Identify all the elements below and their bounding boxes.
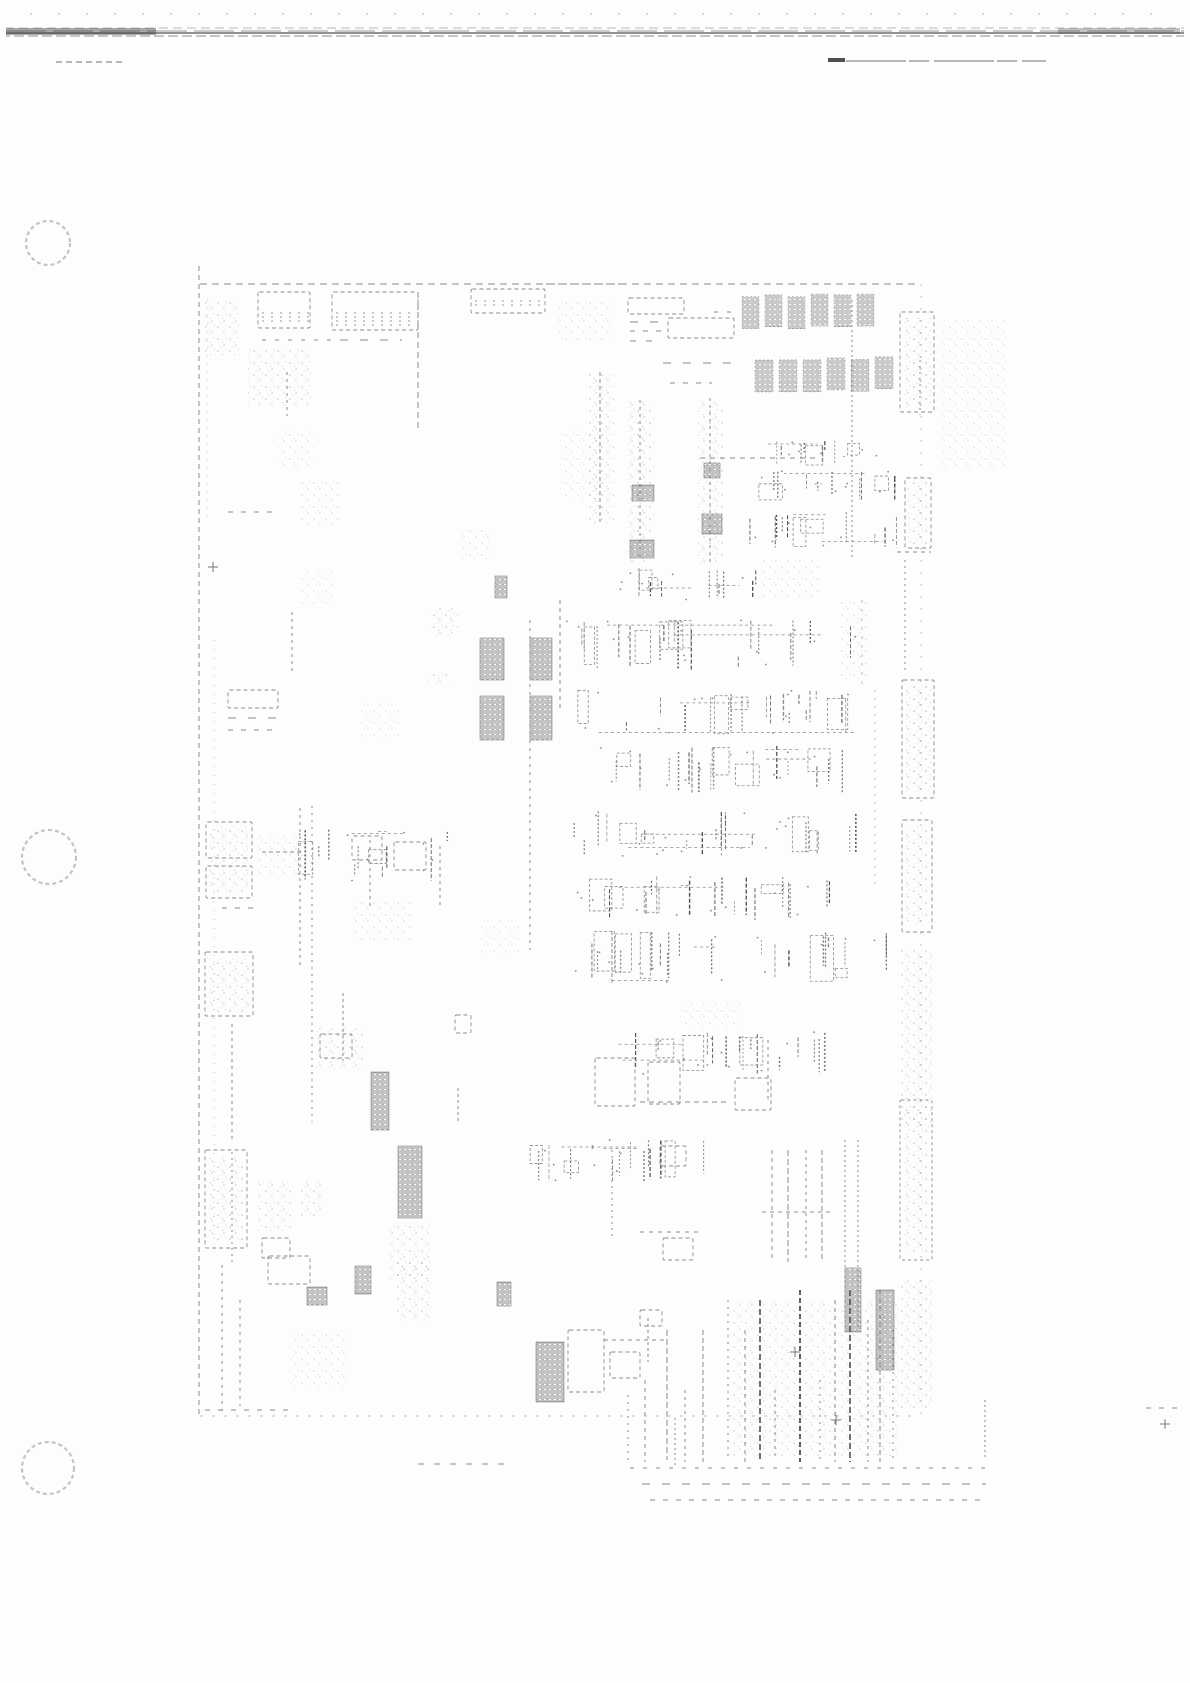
punch-holes — [22, 221, 76, 1494]
cluster-box — [564, 1161, 578, 1172]
cluster-dot — [788, 454, 790, 456]
ic-cell — [875, 357, 893, 389]
component-cluster — [574, 811, 856, 857]
cluster-dot — [629, 751, 631, 753]
cluster-dot — [740, 847, 742, 849]
speck-cluster — [248, 348, 312, 406]
cluster-dot — [681, 850, 683, 852]
dark-component-block — [495, 576, 507, 598]
cluster-dot — [652, 967, 654, 969]
component-box — [228, 690, 278, 708]
cluster-dot — [699, 768, 701, 770]
dark-component-block — [530, 638, 552, 680]
cluster-dot — [773, 774, 775, 776]
speck-cluster — [906, 686, 931, 792]
dark-component-block — [632, 485, 654, 501]
speck-cluster — [258, 1180, 294, 1232]
component-box — [648, 1062, 680, 1104]
cluster-dot — [668, 732, 670, 734]
dark-component-block — [630, 540, 654, 558]
dark-component-block — [307, 1287, 327, 1305]
component-box — [595, 1058, 635, 1106]
ic-block-row — [755, 357, 893, 392]
cluster-dot — [636, 909, 638, 911]
cluster-dot — [876, 455, 878, 457]
schematic-drawing — [199, 266, 1184, 1500]
speck-cluster — [300, 1180, 322, 1216]
cluster-dot — [659, 1040, 661, 1042]
dark-component-block — [480, 696, 504, 740]
cluster-dot — [798, 451, 800, 453]
cluster-dot — [641, 973, 643, 975]
cluster-dot — [616, 1170, 618, 1172]
cluster-dot — [676, 914, 678, 916]
cluster-dot — [794, 629, 796, 631]
cluster-dot — [615, 971, 617, 973]
dark-component-block — [536, 1342, 564, 1402]
plus-mark — [208, 562, 218, 572]
cluster-box — [793, 517, 806, 546]
cluster-dot — [684, 779, 686, 781]
cluster-box — [669, 621, 691, 648]
cluster-dot — [788, 817, 790, 819]
speck-cluster — [898, 950, 932, 1125]
cluster-dot — [740, 620, 742, 622]
speck-cluster — [203, 300, 241, 355]
component-box — [394, 842, 426, 870]
speck-cluster — [210, 826, 248, 894]
component-box — [640, 1310, 662, 1326]
cluster-dot — [672, 573, 674, 575]
cluster-dot — [683, 1058, 685, 1060]
cluster-dot — [845, 486, 847, 488]
cluster-box — [730, 697, 748, 709]
cluster-dot — [690, 876, 692, 878]
speck-cluster — [698, 400, 724, 565]
speck-cluster — [480, 920, 520, 956]
cluster-dot — [694, 698, 696, 700]
cluster-dot — [613, 638, 615, 640]
cluster-dot — [845, 938, 847, 940]
speck-cluster — [556, 300, 612, 340]
cluster-dot — [761, 477, 763, 479]
component-cluster — [578, 690, 854, 734]
cluster-box — [605, 886, 623, 908]
cluster-dot — [544, 1150, 546, 1152]
cluster-dot — [784, 489, 786, 491]
component-box — [352, 836, 382, 860]
speck-cluster — [428, 672, 450, 686]
speck-cluster — [560, 430, 600, 500]
cluster-dot — [787, 694, 789, 696]
speck-cluster — [942, 320, 1008, 470]
cluster-dot — [820, 452, 822, 454]
component-cluster — [577, 876, 830, 920]
cluster-dot — [629, 572, 631, 574]
cluster-dot — [597, 692, 599, 694]
cluster-dot — [755, 536, 757, 538]
speck-cluster — [730, 1300, 898, 1458]
ic-cell — [857, 294, 874, 326]
cluster-dot — [658, 889, 660, 891]
cluster-dot — [685, 599, 687, 601]
dark-component-block — [355, 1266, 371, 1294]
component-box — [262, 1238, 290, 1258]
cluster-dot — [639, 843, 641, 845]
speck-cluster — [680, 1000, 740, 1028]
speck-cluster — [430, 608, 458, 636]
cluster-dot — [553, 1164, 555, 1166]
cluster-box — [805, 446, 822, 465]
cluster-dot — [640, 767, 642, 769]
cluster-box — [617, 753, 631, 766]
component-cluster — [600, 746, 842, 793]
dark-component-block — [704, 463, 720, 478]
cluster-dot — [788, 522, 790, 524]
cluster-box — [590, 879, 612, 911]
cluster-dot — [756, 651, 758, 653]
cluster-box — [584, 627, 594, 664]
dark-component-block — [497, 1282, 511, 1306]
cluster-dot — [707, 1064, 709, 1066]
cluster-dot — [721, 902, 723, 904]
cluster-dot — [785, 715, 787, 717]
cluster-dot — [765, 847, 767, 849]
cluster-dot — [797, 914, 799, 916]
cluster-box — [735, 764, 759, 786]
cluster-dot — [761, 1070, 763, 1072]
speck-cluster — [209, 958, 249, 1012]
cluster-dot — [622, 855, 624, 857]
ic-block-row — [742, 294, 874, 329]
ic-cell — [803, 360, 821, 392]
cluster-dot — [822, 545, 824, 547]
cluster-dot — [595, 815, 597, 817]
cluster-box — [620, 823, 636, 843]
tick-marks — [337, 312, 409, 326]
cluster-box — [808, 749, 830, 772]
cluster-dot — [757, 937, 759, 939]
cluster-dot — [666, 981, 668, 983]
component-box — [610, 1352, 640, 1378]
component-box — [332, 292, 418, 330]
speck-cluster — [904, 318, 931, 406]
schematic-canvas — [0, 0, 1190, 1683]
dark-component-block — [480, 638, 504, 680]
cluster-dot — [609, 1139, 611, 1141]
ic-cell — [779, 360, 797, 392]
cluster-dot — [710, 910, 712, 912]
component-cluster — [750, 512, 896, 547]
ic-cell — [788, 297, 805, 329]
cluster-dot — [594, 1164, 596, 1166]
cluster-dot — [347, 834, 349, 836]
plus-mark — [1160, 1419, 1170, 1429]
cluster-dot — [611, 781, 613, 783]
cluster-box — [715, 696, 729, 734]
speck-cluster — [904, 1106, 929, 1254]
cluster-box — [640, 933, 650, 979]
component-cluster — [759, 470, 895, 500]
cluster-dot — [779, 821, 781, 823]
cluster-dot — [581, 897, 583, 899]
cluster-box — [656, 1039, 674, 1058]
cluster-dot — [807, 886, 809, 888]
cluster-dot — [701, 698, 703, 700]
punch-hole — [22, 1442, 74, 1494]
cluster-box — [875, 476, 889, 490]
cluster-dot — [786, 1043, 788, 1045]
scanner-streak-dark-left — [6, 28, 156, 35]
cluster-dot — [658, 728, 660, 730]
cluster-dot — [779, 777, 781, 779]
ic-cell — [742, 296, 759, 328]
cluster-dot — [642, 1073, 644, 1075]
ic-cell — [755, 360, 773, 392]
cluster-box — [369, 850, 387, 864]
cluster-dot — [813, 1031, 815, 1033]
component-cluster — [620, 568, 756, 600]
cluster-dot — [641, 583, 643, 585]
cluster-dot — [791, 442, 793, 444]
component-cluster — [768, 441, 877, 465]
cluster-dot — [555, 1179, 557, 1181]
cluster-dot — [422, 843, 424, 845]
cluster-dot — [887, 471, 889, 473]
tick-marks — [476, 300, 539, 308]
component-box — [568, 1330, 604, 1392]
component-box — [268, 1256, 310, 1284]
cluster-dot — [620, 588, 622, 590]
cluster-dot — [774, 892, 776, 894]
cluster-dot — [600, 747, 602, 749]
cluster-dot — [664, 837, 666, 839]
dark-component-block — [371, 1072, 389, 1130]
component-box — [663, 1238, 693, 1260]
cluster-dot — [787, 751, 789, 753]
cluster-dot — [781, 470, 783, 472]
speck-cluster — [908, 482, 928, 544]
speck-cluster — [255, 836, 303, 876]
speck-cluster — [840, 600, 870, 680]
cluster-dot — [584, 727, 586, 729]
cluster-dot — [742, 577, 744, 579]
dark-component-block — [530, 696, 552, 740]
cluster-dot — [683, 655, 685, 657]
speck-cluster — [278, 430, 314, 470]
cluster-dot — [620, 1152, 622, 1154]
cluster-dot — [575, 970, 577, 972]
cluster-dot — [821, 944, 823, 946]
cluster-box — [530, 1145, 542, 1163]
cluster-dot — [892, 539, 894, 541]
ic-cell — [811, 294, 828, 326]
dark-component-block — [702, 514, 722, 534]
speck-cluster — [396, 1258, 430, 1322]
component-cluster — [566, 620, 856, 670]
cluster-box — [578, 690, 588, 723]
cluster-dot — [607, 621, 609, 623]
cluster-dot — [879, 491, 881, 493]
cluster-box — [641, 834, 654, 843]
cluster-dot — [403, 832, 405, 834]
cluster-dot — [746, 752, 748, 754]
scan-artifacts — [6, 14, 1184, 62]
component-box — [455, 1015, 471, 1033]
cluster-dot — [861, 449, 863, 451]
component-box — [668, 318, 734, 338]
cluster-dot — [714, 936, 716, 938]
cluster-dot — [592, 1147, 594, 1149]
cluster-box — [759, 484, 782, 500]
component-box — [660, 1146, 686, 1166]
cluster-dot — [874, 940, 876, 942]
cluster-dot — [697, 1064, 699, 1066]
cluster-box — [761, 885, 782, 894]
cluster-box — [712, 747, 729, 775]
cluster-dot — [712, 697, 714, 699]
cluster-dot — [578, 626, 580, 628]
ic-cell — [834, 295, 851, 327]
ic-cell — [851, 359, 869, 391]
cluster-dot — [684, 659, 686, 661]
dark-component-block — [398, 1146, 422, 1218]
cluster-dot — [814, 756, 816, 758]
ic-cell — [765, 295, 782, 327]
cluster-dot — [771, 541, 773, 543]
cluster-dot — [835, 490, 837, 492]
cluster-dot — [299, 833, 301, 835]
tick-marks — [263, 312, 308, 324]
component-cluster — [619, 1031, 825, 1074]
component-box — [471, 289, 545, 313]
cluster-dot — [680, 630, 682, 632]
speck-cluster — [628, 400, 654, 562]
cluster-box — [615, 934, 631, 972]
speck-cluster — [352, 900, 412, 940]
component-box — [628, 298, 684, 314]
cluster-dot — [592, 899, 594, 901]
cluster-dot — [351, 880, 353, 882]
cluster-dot — [662, 849, 664, 851]
cluster-dot — [656, 853, 658, 855]
cluster-dot — [639, 963, 641, 965]
cluster-dot — [730, 754, 732, 756]
cluster-box — [683, 1035, 704, 1070]
speck-cluster — [906, 826, 929, 926]
cluster-dot — [814, 640, 816, 642]
cluster-box — [639, 570, 652, 590]
cluster-box — [801, 519, 823, 533]
cluster-dot — [684, 717, 686, 719]
cluster-dot — [599, 951, 601, 953]
cluster-dot — [847, 694, 849, 696]
punch-hole — [22, 830, 76, 884]
cluster-dot — [666, 784, 668, 786]
speck-cluster — [898, 1280, 932, 1408]
ic-cell — [827, 358, 845, 390]
speck-cluster — [760, 560, 820, 600]
speck-cluster — [290, 1330, 348, 1388]
cluster-box — [635, 630, 650, 663]
punch-hole — [26, 221, 70, 265]
cluster-dot — [566, 620, 568, 622]
speck-cluster — [300, 480, 340, 526]
cluster-dot — [627, 636, 629, 638]
cluster-dot — [743, 812, 745, 814]
cluster-dot — [765, 664, 767, 666]
cluster-box — [827, 698, 847, 729]
cluster-dot — [711, 1038, 713, 1040]
cluster-dot — [432, 859, 434, 861]
speck-cluster — [209, 1156, 243, 1242]
cluster-dot — [809, 527, 811, 529]
cluster-dot — [728, 1066, 730, 1068]
cluster-dot — [846, 483, 848, 485]
cluster-dot — [764, 971, 766, 973]
cluster-dot — [725, 906, 727, 908]
cluster-dot — [772, 732, 774, 734]
component-cluster — [575, 931, 886, 983]
cluster-box — [810, 936, 833, 982]
component-box — [258, 292, 310, 328]
cluster-dot — [791, 690, 793, 692]
scanned-page — [0, 0, 1190, 1683]
speck-cluster — [460, 530, 490, 560]
cluster-dot — [840, 536, 842, 538]
component-box — [735, 1078, 771, 1110]
cluster-dot — [621, 581, 623, 583]
cluster-box — [835, 968, 847, 977]
scanner-streak-dark-right — [1058, 28, 1180, 34]
cluster-dot — [721, 979, 723, 981]
cluster-dot — [577, 892, 579, 894]
speck-cluster — [300, 570, 336, 606]
cluster-dot — [592, 1145, 594, 1147]
scanner-streak-band — [6, 27, 1184, 37]
cluster-dot — [776, 828, 778, 830]
speck-cluster — [360, 700, 400, 740]
cluster-dot — [721, 1052, 723, 1054]
cluster-dot — [785, 825, 787, 827]
cluster-dot — [608, 961, 610, 963]
cluster-box — [848, 444, 860, 456]
component-cluster — [298, 830, 447, 882]
